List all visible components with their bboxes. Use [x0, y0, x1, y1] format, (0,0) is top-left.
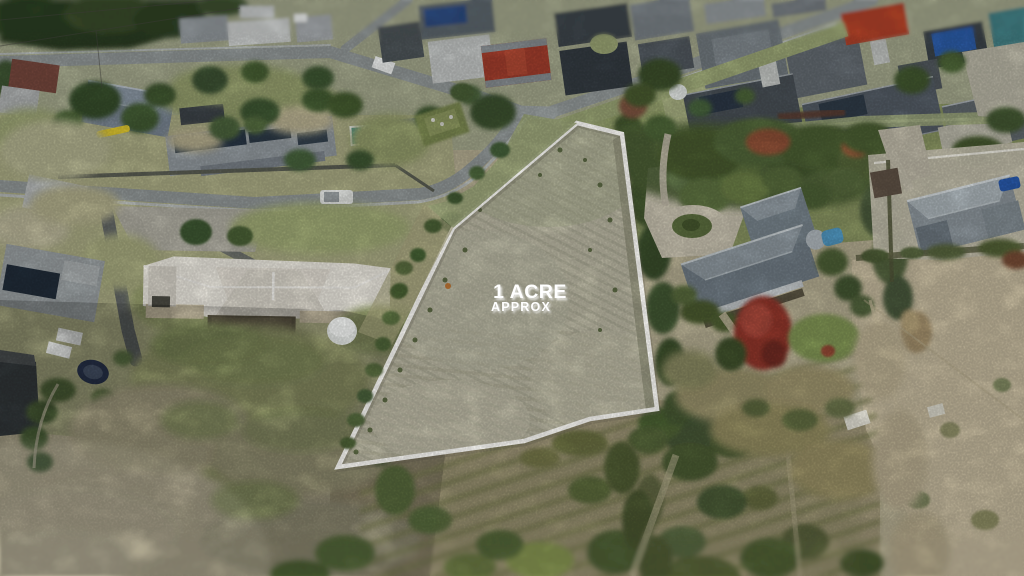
- svg-text:APPROX: APPROX: [491, 300, 551, 314]
